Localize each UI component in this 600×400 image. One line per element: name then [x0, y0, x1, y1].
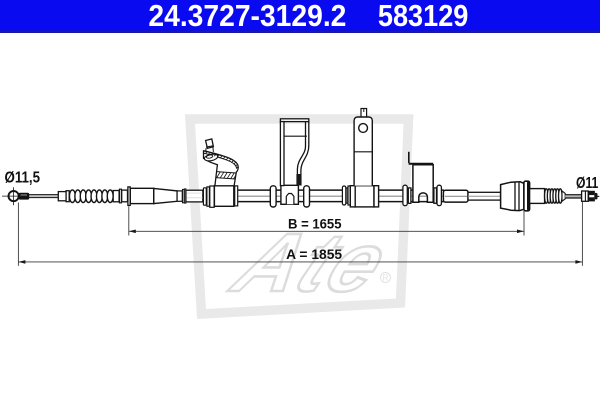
svg-text:B = 1655: B = 1655 [288, 216, 342, 232]
svg-text:A = 1855: A = 1855 [286, 246, 342, 262]
svg-text:Ø11: Ø11 [576, 175, 598, 192]
svg-text:24.3727-3129.2: 24.3727-3129.2 [148, 0, 346, 33]
svg-text:Ø11,5: Ø11,5 [5, 169, 41, 186]
svg-text:583129: 583129 [378, 0, 469, 33]
svg-text:R: R [383, 273, 389, 282]
